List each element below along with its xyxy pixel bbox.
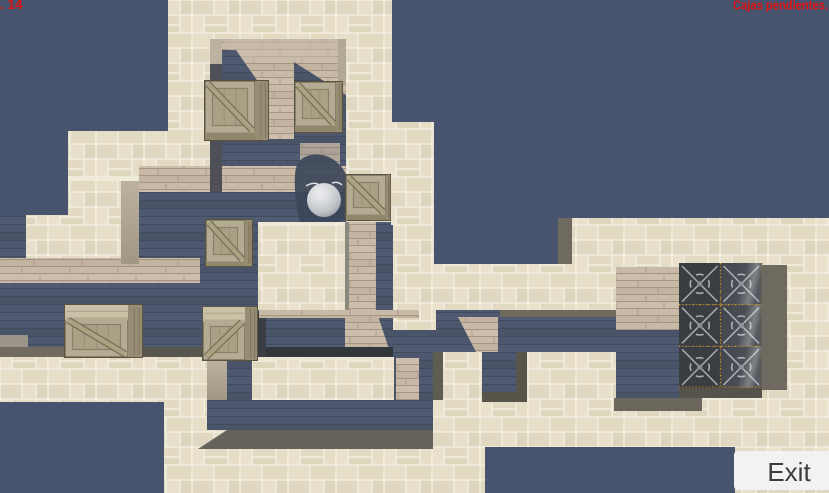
svg-text:Exit: Exit [767,457,811,487]
svg-text:Cajas pendientes.: Cajas pendientes. [733,0,828,13]
svg-text:. 14: . 14 [0,0,23,12]
